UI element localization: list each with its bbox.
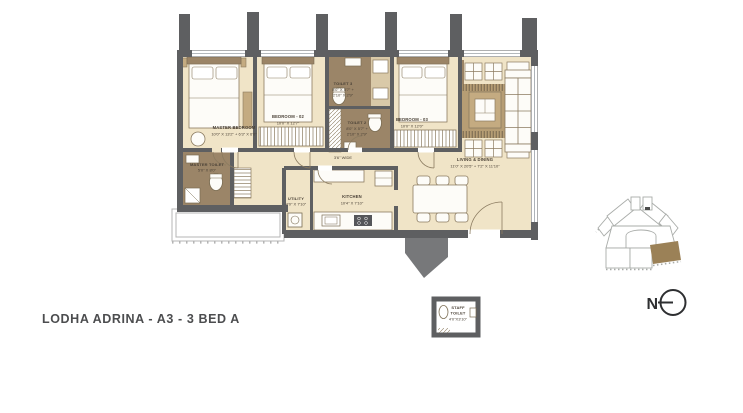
utility-dims: 4'0" X 7'10"	[286, 202, 307, 207]
bedroom-03-dims: 10'0" X 12'0"	[401, 124, 424, 129]
ottoman	[191, 132, 205, 146]
foyer-shaft	[234, 168, 251, 198]
plan-title: LODHA ADRINA - A3 - 3 BED A	[42, 312, 240, 326]
floorplan-page: MASTER BEDROOM 10'0" X 13'2" + 6'3" X 6'…	[0, 0, 743, 413]
washer	[288, 213, 302, 227]
toilet-3-dims-1: 8'0" X 5'7" +	[332, 87, 354, 92]
hob	[354, 215, 372, 226]
toilet-3-label: TOILET 3	[334, 81, 353, 86]
entrance-porch	[405, 238, 448, 278]
kitchen-label: KITCHEN	[342, 194, 362, 199]
passage-width-label: 3'6" WIDE	[334, 155, 353, 160]
columns	[179, 12, 537, 56]
floorplan-drawing: MASTER BEDROOM 10'0" X 13'2" + 6'3" X 6'…	[0, 0, 743, 413]
utility-label: UTILITY	[288, 196, 304, 201]
toilet-2-label: TOILET 2	[348, 120, 367, 125]
living-room-furniture	[462, 62, 531, 158]
staff-toilet-label-2: TOILET	[450, 311, 465, 316]
bedroom-03-label: BEDROOM - 03	[396, 117, 429, 122]
toilet-3-dims-2: 2'10" X 2'9"	[333, 93, 354, 98]
living-dining-label: LIVING & DINING	[457, 157, 493, 162]
key-plan-marker	[645, 207, 650, 210]
kitchen-dims: 10'4" X 7'10"	[341, 201, 364, 206]
master-bedroom-label: MASTER BEDROOM	[213, 125, 256, 130]
kitchen-platform	[314, 170, 364, 182]
staff-toilet-inset: STAFF TOILET 4'0"X3'10"	[434, 299, 478, 335]
utility-fittings	[288, 213, 302, 227]
staff-toilet-dims: 4'0"X3'10"	[449, 317, 468, 322]
kitchen-sink	[322, 215, 340, 226]
staff-toilet-label-1: STAFF	[451, 305, 465, 310]
sofa	[505, 70, 531, 152]
master-toilet-label: MASTER TOILET	[190, 162, 225, 167]
terrace-deck	[172, 209, 284, 243]
north-label: N	[646, 296, 658, 313]
dining-table	[413, 185, 467, 213]
living-dining-dims: 11'0" X 20'5" + 7'2" X 11'10"	[450, 164, 500, 169]
fridge	[375, 171, 392, 186]
north-arrow: N	[646, 290, 685, 315]
key-plan-highlighted-unit	[650, 241, 681, 264]
master-toilet-dims: 5'0" X 8'0"	[198, 168, 217, 173]
master-bedroom-dims: 10'0" X 13'2" + 6'3" X 6'0"	[211, 132, 257, 137]
dining-set	[413, 176, 468, 222]
dresser	[243, 92, 252, 128]
key-plan	[596, 197, 681, 270]
toilet-2-dims-2: 2'10" X 2'9"	[347, 132, 368, 137]
bedroom-02-label: BEDROOM - 02	[272, 114, 305, 119]
bedroom-02-dims: 10'0" X 12'7"	[277, 121, 300, 126]
toilet-2-dims-1: 8'0" X 5'7" +	[346, 126, 368, 131]
